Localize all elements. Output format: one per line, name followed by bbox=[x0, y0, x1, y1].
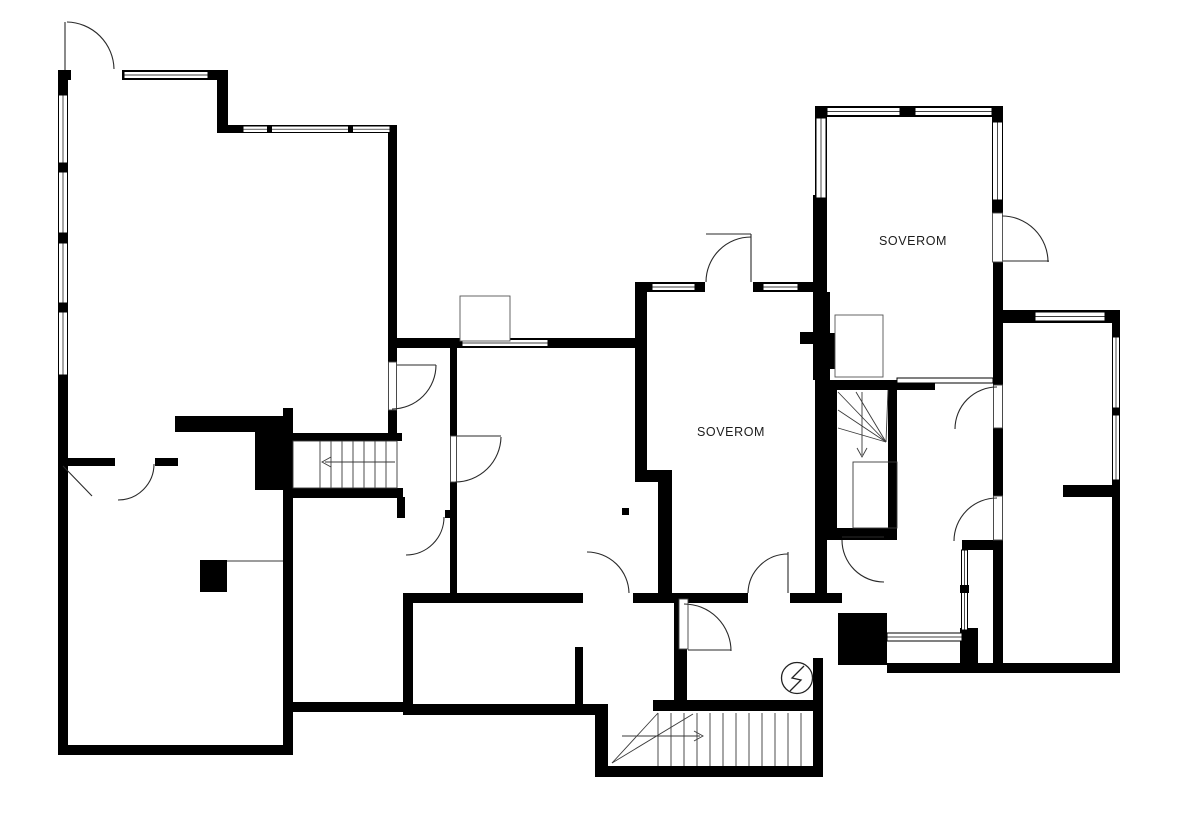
window bbox=[1113, 415, 1120, 480]
staircase-upper-left bbox=[293, 441, 397, 488]
door-swing bbox=[455, 436, 501, 482]
room-label-bedroom-middle: SOVEROM bbox=[697, 425, 765, 439]
door-swing bbox=[406, 517, 444, 555]
fixtures-layer bbox=[227, 296, 883, 561]
door-swing bbox=[65, 22, 114, 70]
window bbox=[243, 125, 390, 133]
glass-partition bbox=[960, 550, 969, 630]
window bbox=[59, 95, 68, 163]
window bbox=[887, 633, 962, 641]
door-swing bbox=[1002, 216, 1049, 262]
windows-layer bbox=[59, 72, 1120, 642]
window bbox=[59, 243, 68, 303]
staircase-bottom bbox=[612, 713, 801, 766]
floor-plan-canvas: SOVEROM SOVEROM bbox=[0, 0, 1180, 832]
floor-plan-page: SOVEROM SOVEROM bbox=[0, 0, 1180, 832]
window bbox=[124, 72, 208, 79]
door-swing bbox=[684, 604, 731, 651]
door-swing bbox=[954, 498, 997, 541]
door-swing bbox=[706, 234, 751, 282]
door-swing bbox=[118, 464, 154, 500]
window bbox=[652, 284, 695, 291]
wardrobe bbox=[835, 315, 883, 377]
door-swing bbox=[842, 537, 884, 582]
window bbox=[59, 172, 68, 233]
walls-layer bbox=[58, 70, 1120, 777]
railing bbox=[897, 378, 993, 383]
electrical-panel-icon bbox=[782, 663, 813, 694]
window bbox=[915, 108, 992, 116]
window bbox=[763, 284, 798, 291]
door-swing bbox=[587, 552, 629, 593]
room-label-bedroom-upper: SOVEROM bbox=[879, 234, 947, 248]
window bbox=[1035, 312, 1105, 321]
window bbox=[827, 108, 900, 116]
door-swing bbox=[748, 552, 788, 593]
window bbox=[59, 312, 68, 375]
door-swing bbox=[955, 387, 997, 429]
window bbox=[816, 118, 826, 198]
door-swing bbox=[392, 365, 436, 409]
window bbox=[993, 122, 1003, 200]
window bbox=[1113, 337, 1120, 408]
wardrobe bbox=[460, 296, 510, 341]
